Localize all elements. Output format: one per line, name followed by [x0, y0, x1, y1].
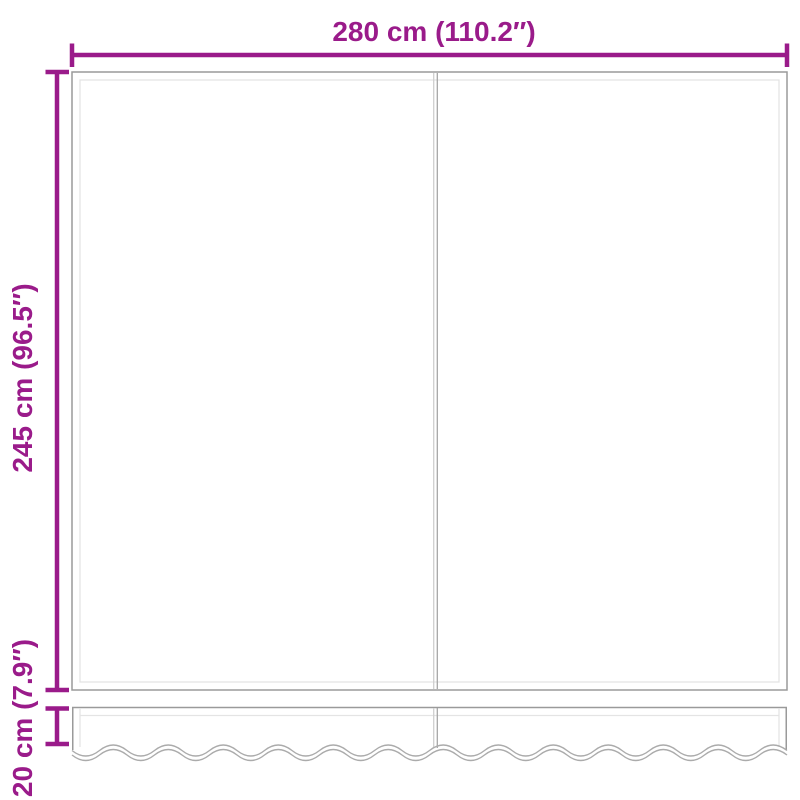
width-dimension: 280 cm (110.2″) — [72, 16, 787, 67]
height-dimension: 245 cm (96.5″) — [7, 72, 69, 690]
valance-height-dimension: 20 cm (7.9″) — [7, 639, 69, 797]
valance-height-dimension-label: 20 cm (7.9″) — [7, 639, 38, 797]
fabric-panel-inner-seam — [80, 80, 779, 682]
width-dimension-label: 280 cm (110.2″) — [332, 16, 535, 47]
fabric-panel-outline — [72, 72, 787, 690]
fabric-panel — [72, 72, 787, 690]
valance-strip — [72, 708, 787, 761]
height-dimension-label: 245 cm (96.5″) — [7, 283, 38, 472]
dimension-diagram-page: 280 cm (110.2″) 245 cm (96.5″) 20 cm (7.… — [0, 0, 800, 800]
awning-fabric-dimension-diagram: 280 cm (110.2″) 245 cm (96.5″) 20 cm (7.… — [0, 0, 800, 800]
